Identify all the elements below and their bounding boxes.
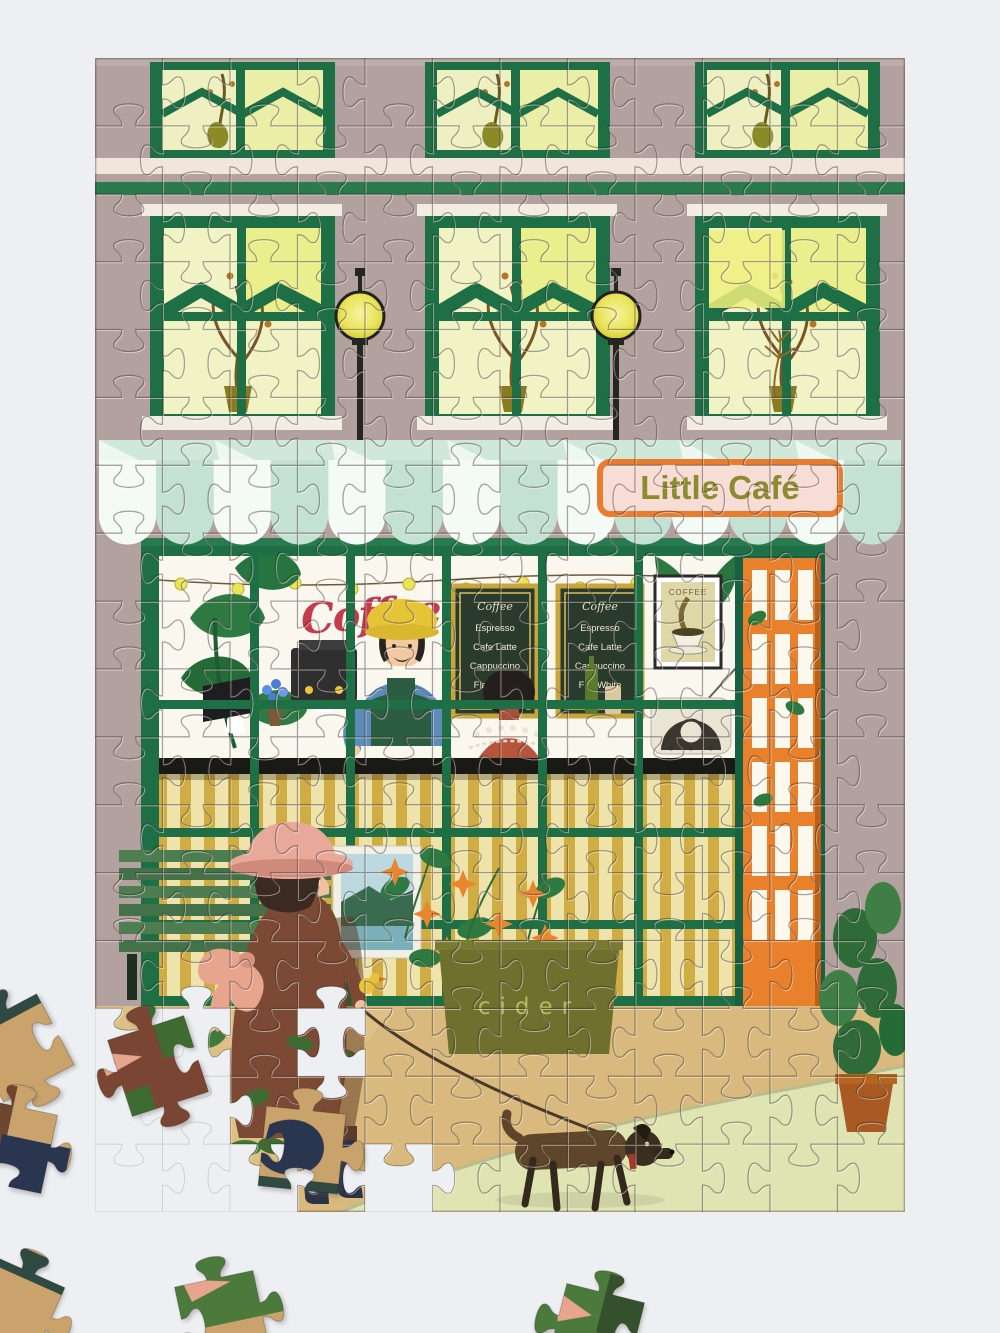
loose-piece-6 xyxy=(150,1243,304,1333)
loose-piece-7 xyxy=(521,1257,669,1333)
loose-pieces-layer xyxy=(0,0,1000,1333)
loose-piece-4 xyxy=(246,1083,370,1216)
loose-piece-3 xyxy=(80,986,244,1152)
loose-piece-5 xyxy=(0,1227,94,1333)
